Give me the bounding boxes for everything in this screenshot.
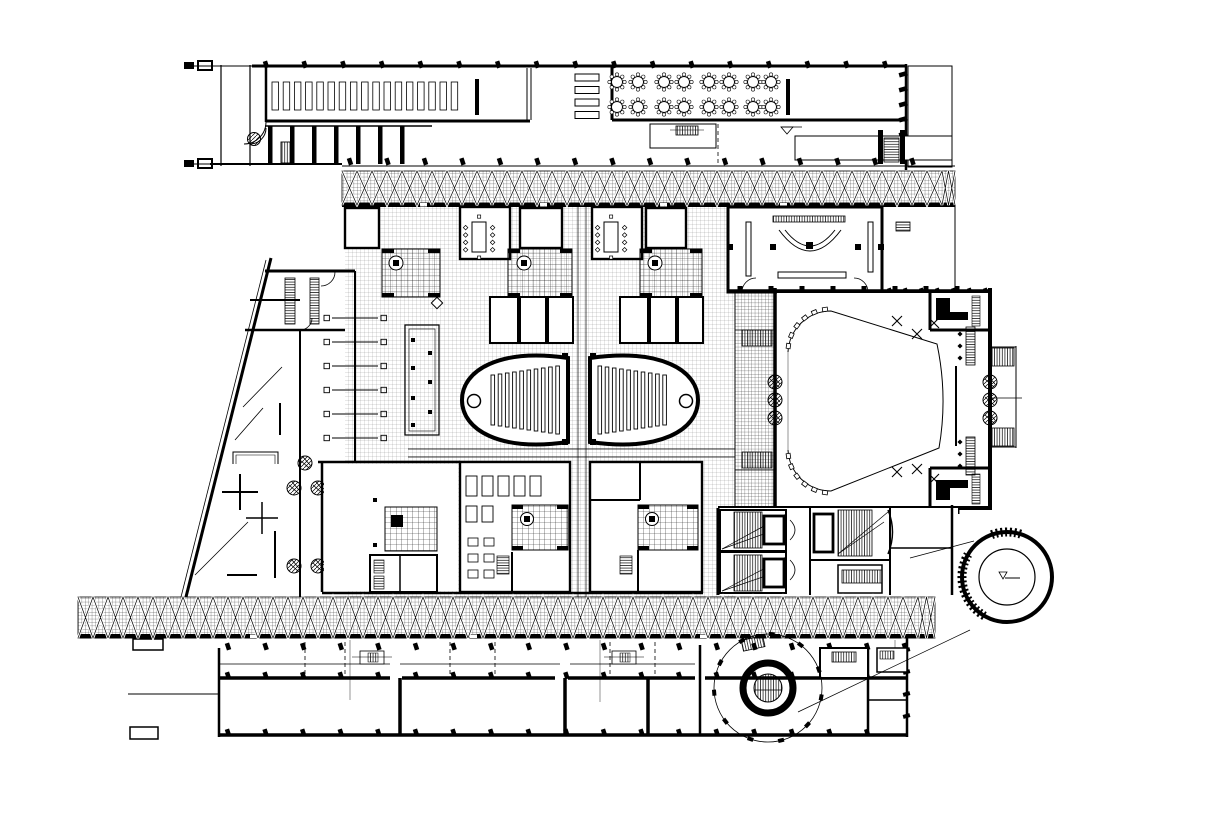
courtyard <box>385 507 437 551</box>
courtyard <box>640 249 702 297</box>
stair-treads <box>676 126 698 135</box>
wc-fixture <box>285 278 295 324</box>
detail-circle <box>962 532 1052 622</box>
upper-wing <box>184 60 955 170</box>
cross-marker <box>222 474 278 534</box>
conference-table <box>472 222 486 252</box>
door-swing <box>321 272 335 286</box>
exterior-stair <box>992 428 1014 446</box>
serving-counters <box>575 74 599 119</box>
courtyard <box>638 505 698 550</box>
elevator <box>814 514 833 552</box>
spiral-stair <box>712 632 824 743</box>
bench <box>233 452 278 464</box>
sloped-wall <box>186 258 271 597</box>
stair-core <box>248 133 261 146</box>
stair-treads <box>884 138 899 162</box>
end-cap <box>184 160 194 167</box>
level-marker <box>781 127 793 134</box>
courtyard <box>382 249 440 297</box>
wc-fixture <box>281 142 294 163</box>
ramp-line <box>243 367 282 407</box>
skylight-band-bottom <box>78 597 935 702</box>
banquet-tables <box>608 73 780 116</box>
exterior-stair <box>992 348 1014 366</box>
end-cap <box>184 62 194 69</box>
wc-fixture <box>310 278 319 324</box>
structural-columns <box>287 456 325 573</box>
stair-elevator-zone <box>718 505 958 595</box>
conference-table <box>604 222 618 252</box>
shelf-stacks <box>272 82 458 110</box>
floor-plan-canvas <box>0 0 1224 829</box>
courtyard <box>508 249 572 297</box>
stair-core <box>754 674 782 702</box>
main-auditorium <box>718 205 1022 514</box>
cad-floor-plan <box>0 0 1224 829</box>
elevator <box>764 516 784 544</box>
skylight-band-top <box>342 171 955 207</box>
elevator <box>764 559 784 587</box>
courtyard <box>512 505 568 550</box>
ramp-line <box>235 408 263 440</box>
